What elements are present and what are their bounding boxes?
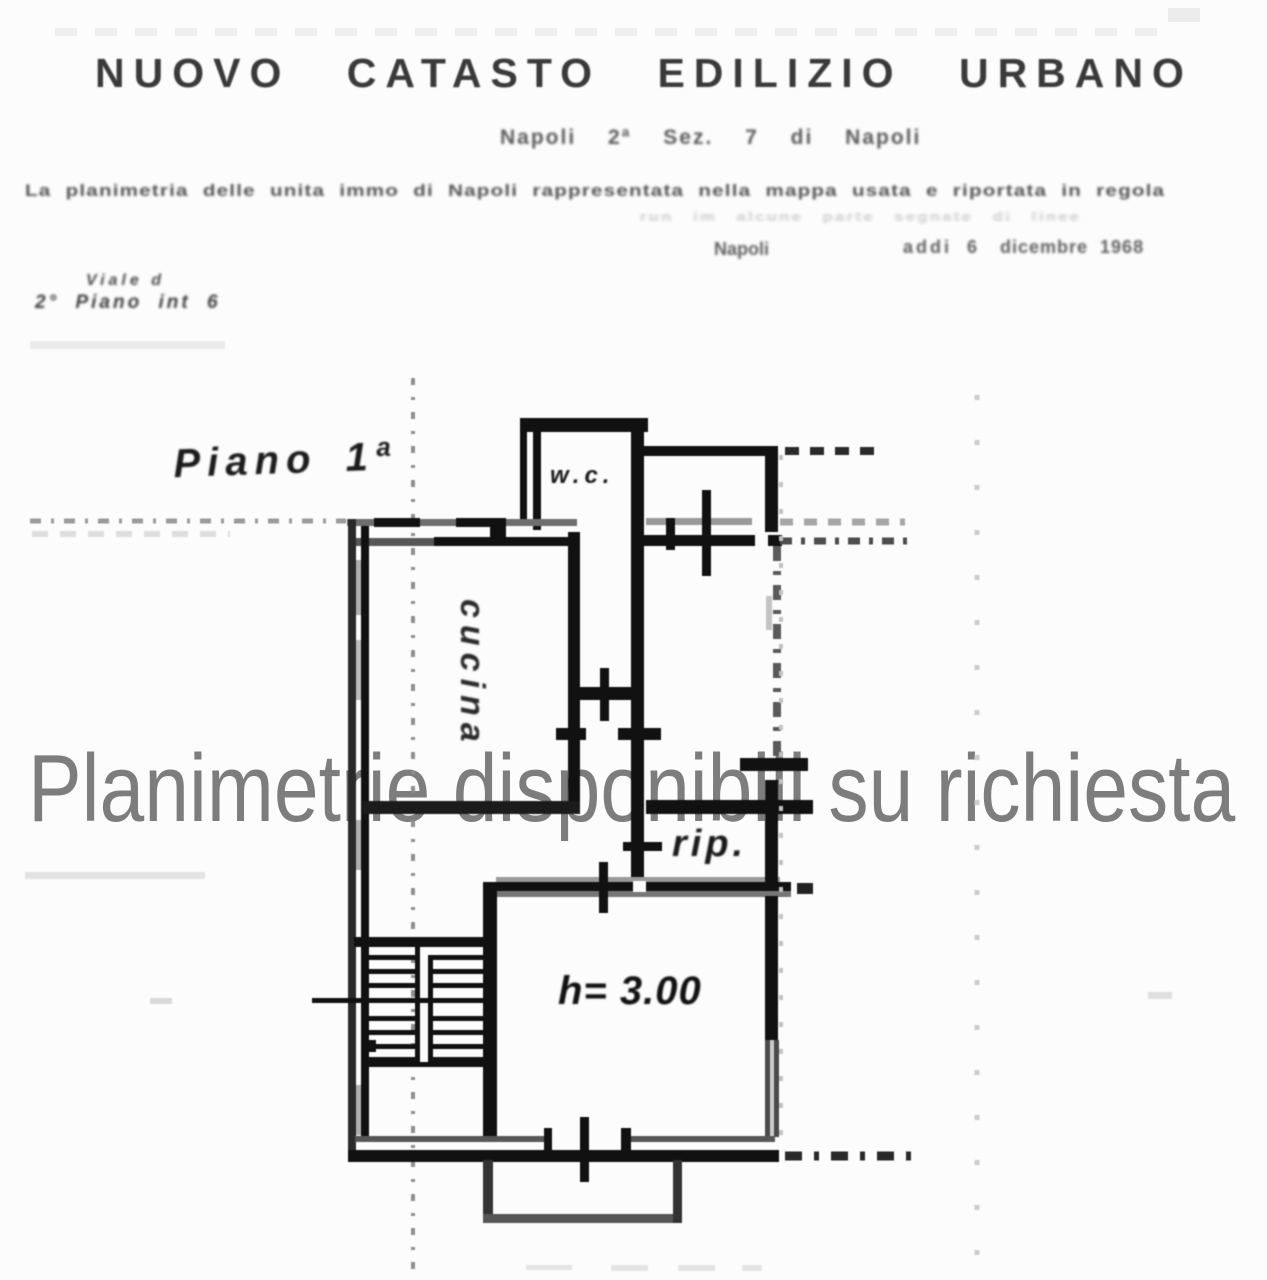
svg-text:cucina: cucina [453, 599, 491, 749]
svg-text:Piano 1ª: Piano 1ª [173, 434, 397, 486]
svg-text:w.c.: w.c. [550, 462, 614, 489]
svg-text:h= 3.00: h= 3.00 [558, 969, 702, 1013]
svg-text:rip.: rip. [672, 823, 747, 865]
